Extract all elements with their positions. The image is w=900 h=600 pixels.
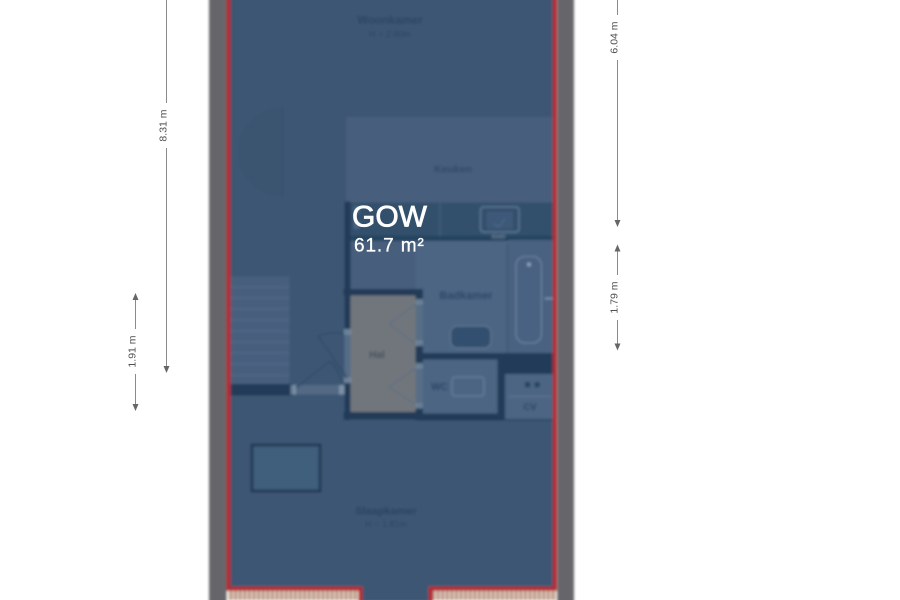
svg-text:Hal: Hal (369, 350, 385, 361)
svg-text:GOW: GOW (352, 201, 428, 234)
svg-text:61.7 m²: 61.7 m² (354, 236, 425, 257)
svg-text:Badkamer: Badkamer (439, 290, 493, 302)
svg-text:6.04 m: 6.04 m (609, 21, 621, 53)
svg-text:CV: CV (523, 402, 537, 413)
svg-text:Keuken: Keuken (434, 164, 472, 176)
svg-text:Slaapkamer: Slaapkamer (355, 506, 417, 518)
svg-text:1.79 m: 1.79 m (609, 281, 621, 313)
svg-text:60x60: 60x60 (492, 235, 506, 241)
svg-text:H = 2.60m: H = 2.60m (369, 29, 411, 39)
svg-text:WC: WC (431, 382, 448, 393)
svg-text:1.91 m: 1.91 m (127, 335, 139, 367)
svg-text:Woonkamer: Woonkamer (357, 15, 423, 27)
svg-text:H = 1.81m: H = 1.81m (365, 519, 407, 529)
svg-text:8.31 m: 8.31 m (158, 109, 170, 141)
